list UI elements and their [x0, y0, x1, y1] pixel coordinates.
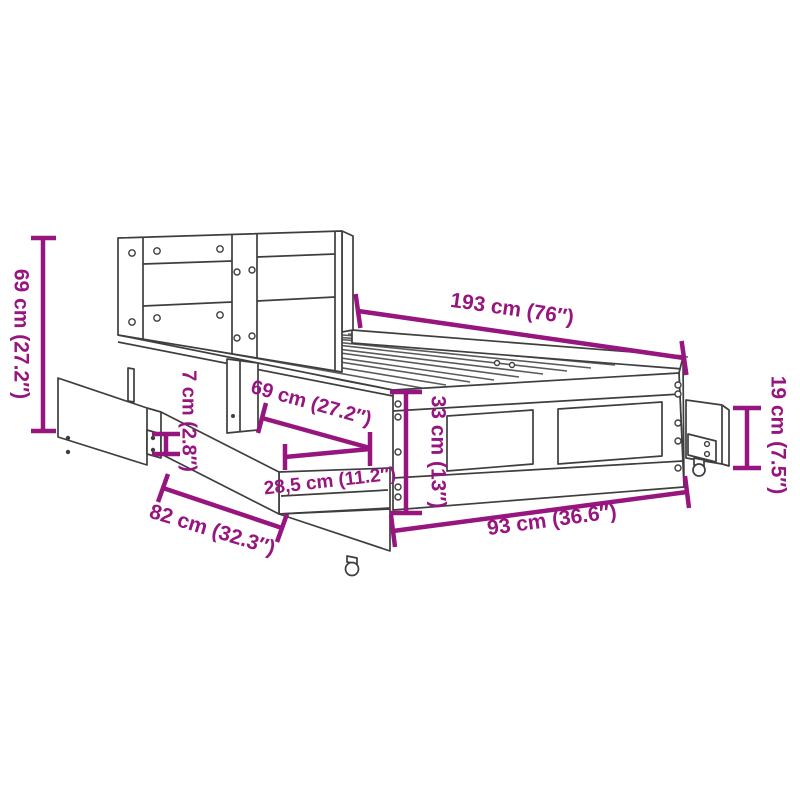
caster-wheel [346, 556, 359, 576]
screw-hole [495, 361, 500, 366]
dim-frame-height-label: 33 cm (13″) [426, 396, 449, 509]
screw-hole [510, 363, 515, 368]
dim-headboard-thickness-label: 7 cm (2.8″) [178, 370, 200, 472]
bed-frame-dimension-diagram: 69 cm (27.2″) 193 cm (76″) 7 cm (2.8″) 6… [0, 0, 800, 800]
headboard-side-face [342, 231, 353, 332]
diagram-canvas: 69 cm (27.2″) 193 cm (76″) 7 cm (2.8″) 6… [0, 0, 800, 800]
dim-side-drawer-height-label: 19 cm (7.5″) [766, 376, 789, 495]
caster-wheel [693, 458, 705, 476]
dim-overall-height-label: 69 cm (27.2″) [9, 269, 32, 399]
